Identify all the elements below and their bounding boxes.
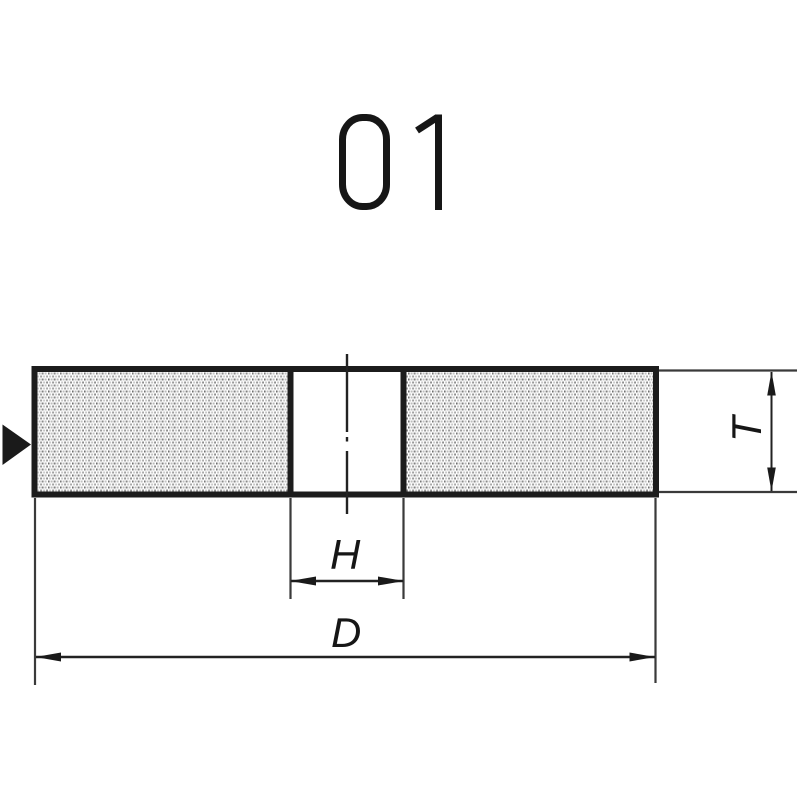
svg-text:D: D — [331, 609, 361, 656]
svg-text:T: T — [723, 413, 770, 442]
svg-text:H: H — [330, 531, 361, 578]
